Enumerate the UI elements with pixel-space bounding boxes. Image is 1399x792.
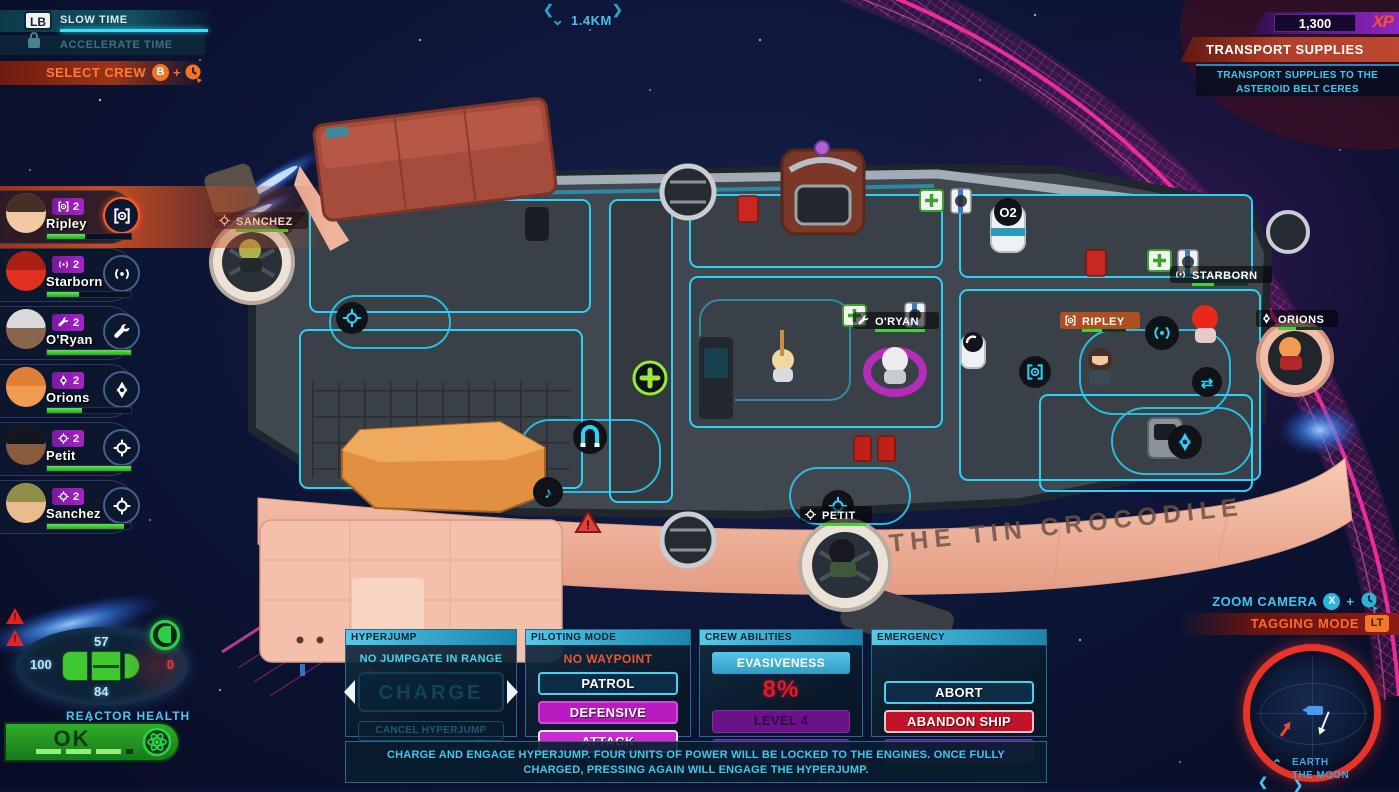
waypoint-status: NO WAYPOINT (526, 652, 690, 666)
piloting-panel: PILOTING MODE NO WAYPOINT PATROL DEFENSI… (525, 629, 691, 737)
hyperjump-status: NO JUMPGATE IN RANGE (346, 653, 516, 665)
emergency-header: EMERGENCY (872, 630, 1046, 646)
cargo-crate[interactable] (342, 422, 545, 512)
cancel-hyperjump-button[interactable]: CANCEL HYPERJUMP (358, 721, 504, 741)
health-fill (47, 350, 131, 355)
role-button[interactable] (103, 313, 140, 350)
svg-text:RIPLEY: RIPLEY (1082, 316, 1125, 328)
crew-card-starborn[interactable]: 2 Starborn (0, 248, 150, 302)
station-comms (1145, 316, 1179, 350)
pan-right-icon[interactable]: ❯ (612, 2, 623, 18)
select-crew-label: SELECT CREW (46, 65, 146, 80)
plus-sign: + (1346, 594, 1354, 609)
avatar-hair (6, 251, 46, 270)
health-bar (46, 465, 132, 472)
mission-objective-line2: ASTEROID BELT CERES (1196, 83, 1399, 97)
slow-time-underline (60, 29, 208, 32)
piloting-header: PILOTING MODE (526, 630, 690, 646)
level-badge: 2 (52, 488, 84, 505)
medkit-icon (1148, 250, 1171, 271)
armor-segment (124, 653, 140, 679)
pan-down-icon[interactable]: ⌄ (551, 10, 564, 30)
crew-ripley (1088, 348, 1112, 385)
level-badge: 2 (52, 198, 84, 215)
patrol-button[interactable]: PATROL (538, 672, 678, 695)
avatar-hair (6, 425, 46, 444)
health-fill (47, 408, 82, 413)
emergency-panel: EMERGENCY ABORT ABANDON SHIP LEVEL 6 (871, 629, 1047, 737)
xp-label: XP (1372, 12, 1393, 32)
crew-card-petit[interactable]: 2 Petit (0, 422, 150, 476)
crew-name: Ripley (46, 216, 87, 231)
reactor-health-label: REACTOR HEALTH (66, 709, 190, 723)
role-button[interactable] (103, 429, 140, 466)
avatar-hair (6, 193, 46, 212)
svg-text:PETIT: PETIT (822, 510, 856, 522)
crew-card-sanchez[interactable]: 2 Sanchez (0, 480, 150, 534)
station-magnet (573, 420, 607, 454)
xp-bar: 1,300 XP (1252, 12, 1399, 34)
select-crew-row: SELECT CREW B + (0, 61, 205, 85)
role-button[interactable] (103, 255, 140, 292)
crew-name: Sanchez (46, 506, 101, 521)
shield-bottom-value: 84 (94, 684, 108, 699)
minimap-right-icon[interactable]: ❯ (1293, 778, 1303, 792)
shield-right-value: 0 (167, 657, 174, 672)
evasiveness-button[interactable]: EVASIVENESS (712, 652, 850, 674)
slow-time-label: SLOW TIME (60, 14, 128, 26)
level-badge: 2 (52, 372, 84, 389)
charge-button[interactable]: CHARGE (358, 672, 504, 712)
defensive-button[interactable]: DEFENSIVE (538, 701, 678, 724)
crew-tag-ripley: RIPLEY (1060, 312, 1140, 332)
b-key-badge: B (152, 64, 169, 81)
avatar-hair (6, 309, 46, 328)
role-button[interactable] (103, 371, 140, 408)
crew-name: Orions (46, 390, 90, 405)
chair (524, 206, 550, 242)
shield-toggle-icon[interactable] (150, 620, 180, 650)
bridge-pod[interactable] (782, 141, 864, 234)
minimap-ship-icon (1307, 706, 1323, 715)
minimap-up-icon[interactable]: ⌃ (1272, 757, 1282, 771)
lb-key-badge: LB (24, 11, 52, 30)
station-target (336, 302, 368, 334)
accelerate-time-row: ACCELERATE TIME (0, 35, 205, 55)
svg-text:O'RYAN: O'RYAN (875, 316, 919, 328)
mission-objective-line1: TRANSPORT SUPPLIES TO THE (1196, 69, 1399, 83)
atom-icon (142, 727, 172, 757)
crew-card-orions[interactable]: 2 Orions (0, 364, 150, 418)
svg-text:⇄: ⇄ (1201, 375, 1214, 392)
abort-button[interactable]: ABORT (884, 681, 1034, 704)
o2-label: O2 (999, 205, 1016, 220)
health-bar (46, 523, 132, 530)
role-button[interactable] (103, 487, 140, 524)
crew-name: O'Ryan (46, 332, 93, 347)
health-bar (46, 291, 132, 298)
svg-text:STARBORN: STARBORN (1192, 270, 1258, 282)
tagging-mode-row: TAGGING MODE LT (1180, 613, 1399, 635)
hyperjump-header: HYPERJUMP (346, 630, 516, 646)
avatar-hair (6, 367, 46, 386)
crew-starborn (1192, 305, 1218, 343)
plus-sign: + (173, 65, 181, 80)
avatar (6, 309, 46, 349)
health-bar (46, 233, 132, 240)
station-music: ♪ (533, 477, 563, 507)
xp-value: 1,300 (1274, 14, 1356, 32)
lock-icon (28, 38, 40, 48)
station-security (1168, 425, 1202, 459)
charge-arrow-right-icon (507, 680, 518, 704)
station-gunner (1019, 356, 1051, 388)
mission-objective: TRANSPORT SUPPLIES TO THE ASTEROID BELT … (1196, 64, 1399, 96)
svg-text:♪: ♪ (544, 485, 552, 502)
crew-abilities-header: CREW ABILITIES (700, 630, 862, 646)
accelerate-time-label: ACCELERATE TIME (60, 39, 173, 51)
avatar (6, 367, 46, 407)
hyperjump-hint: CHARGE AND ENGAGE HYPERJUMP. FOUR UNITS … (345, 741, 1047, 783)
level-badge: 2 (52, 430, 84, 447)
hyperjump-panel: HYPERJUMP NO JUMPGATE IN RANGE CHARGE CA… (345, 629, 517, 737)
crew-name: Starborn (46, 274, 103, 289)
health-fill (47, 466, 131, 471)
command-console: HYPERJUMP NO JUMPGATE IN RANGE CHARGE CA… (345, 629, 1047, 783)
crew-tag-orions: ORIONS (1256, 310, 1338, 330)
crew-tag-starborn: STARBORN (1170, 266, 1272, 286)
evasiveness-value: 8% (700, 676, 862, 704)
x-key-badge: X (1323, 593, 1340, 610)
lt-key-badge: LT (1365, 615, 1389, 632)
crew-card-ripley[interactable]: 2 Ripley (0, 190, 150, 244)
svg-text:!: ! (586, 518, 590, 532)
health-bar (46, 349, 132, 356)
zoom-camera-row: ZOOM CAMERA X + (1150, 591, 1380, 611)
charge-arrow-left-icon (344, 680, 355, 704)
health-bar (46, 407, 132, 414)
locked-level4-button: LEVEL 4 (712, 710, 850, 733)
crew-name: Petit (46, 448, 76, 463)
crew-card-oryan[interactable]: 2 O'Ryan (0, 306, 150, 360)
tagging-mode-label: TAGGING MODE (1251, 616, 1359, 631)
station-pod (961, 332, 985, 368)
armor-segment (62, 651, 88, 681)
avatar (6, 251, 46, 291)
slow-time-row: LB SLOW TIME (0, 10, 212, 32)
station-swap: ⇄ (1192, 367, 1222, 397)
clock-icon (1360, 591, 1380, 611)
station-o2: O2 (991, 198, 1025, 252)
abandon-ship-button[interactable]: ABANDON SHIP (884, 710, 1034, 733)
mission-title-banner: TRANSPORT SUPPLIES (1180, 37, 1399, 62)
station-medical (634, 362, 666, 394)
avatar (6, 193, 46, 233)
avatar-hair (6, 483, 46, 502)
health-fill (47, 524, 124, 529)
shield-left-value: 100 (30, 657, 52, 672)
bridge-crew (815, 141, 829, 155)
crew-abilities-panel: CREW ABILITIES EVASIVENESS 8% LEVEL 4 LE… (699, 629, 863, 737)
zoom-camera-label: ZOOM CAMERA (1212, 594, 1317, 609)
health-fill (47, 292, 79, 297)
role-button[interactable] (103, 197, 140, 234)
reactor-segments (36, 749, 133, 754)
level-badge: 2 (52, 256, 84, 273)
helmet-cabinet (951, 189, 971, 213)
health-fill (47, 234, 85, 239)
level-badge: 2 (52, 314, 84, 331)
crew-tag-oryan: O'RYAN (853, 312, 939, 332)
avatar (6, 483, 46, 523)
svg-text:ORIONS: ORIONS (1278, 314, 1324, 326)
shield-top-value: 57 (94, 634, 108, 649)
turret-orions[interactable] (1258, 321, 1332, 395)
reactor-health-bar: OK (4, 722, 180, 762)
clock-icon (184, 63, 204, 83)
distance-label: 1.4KM (571, 13, 612, 28)
medkit-icon (920, 190, 943, 211)
crew-tag-petit: PETIT (800, 506, 872, 526)
avatar (6, 425, 46, 465)
location-line1: EARTH (1292, 757, 1349, 770)
